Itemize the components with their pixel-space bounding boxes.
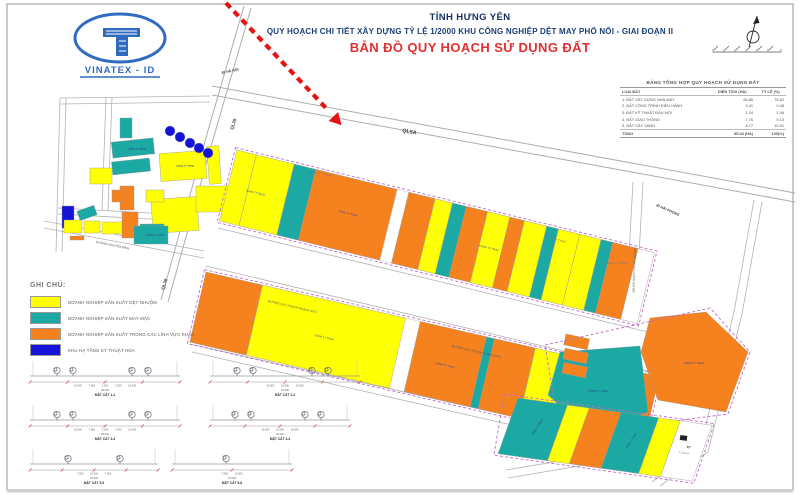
legend-swatch-orange — [30, 328, 61, 340]
plan-sheet: CÔNG TY TNHH CÔNG TY TNHH CÔNG TY TNHH — [0, 0, 800, 500]
logo-t-monogram — [103, 28, 140, 56]
parcel — [146, 190, 164, 202]
parcel — [64, 220, 82, 233]
cell-label: 1. ĐẤT XÂY DỰNG NHÀ MÁY — [620, 96, 709, 103]
land-use-table-title: BẢNG TỔNG HỢP QUY HOẠCH SỬ DỤNG ĐẤT — [620, 80, 786, 85]
water-tank — [185, 138, 195, 148]
section-total: 40.500 — [281, 388, 289, 392]
legend-label: DOANH NGHIỆP SẢN XUẤT TRONG CÁC LĨNH VỰC… — [68, 332, 195, 337]
phase1-cluster: CÔNG TY TNHH CÔNG TY TNHH CÔNG TY TNHH — [62, 118, 230, 244]
vinatex-logo: VINATEX - ID — [75, 14, 165, 77]
cell-label: 3. ĐẤT KỸ THUẬT ĐẦU MỐI — [620, 109, 709, 116]
section-dims: 7.500 15.000 — [221, 472, 243, 476]
cell-area: 1.24 — [709, 109, 755, 116]
kt-code: KT — [686, 445, 691, 450]
section-label: MẶT CẮT 5-5 — [84, 480, 105, 485]
road-label-ql39: QL39 — [229, 118, 237, 131]
legend-label: DOANH NGHIỆP SẢN XUẤT MAY MẶC — [68, 316, 150, 321]
road-label-to-haiphong: ĐI HẢI PHÒNG — [656, 202, 681, 217]
cell-pct: 10.31 — [755, 122, 786, 129]
kt-symbol — [680, 435, 688, 441]
section-total: 22.500 — [228, 476, 236, 480]
table-row: 5. ĐẤT CÂY XANH 8.77 10.31 — [620, 122, 786, 129]
map-canvas: CÔNG TY TNHH CÔNG TY TNHH CÔNG TY TNHH — [0, 0, 800, 500]
water-tank — [175, 132, 185, 142]
cell-pct: 78.62 — [755, 96, 786, 103]
parcel — [102, 222, 122, 234]
section-dims: 7.500 10.500 7.500 — [77, 472, 112, 476]
water-tank — [194, 143, 204, 153]
table-row: 2. ĐẤT CÔNG TRÌNH ĐIỀU HÀNH 0.41 0.48 — [620, 103, 786, 110]
cell-total-label: TỔNG — [620, 129, 709, 137]
plan-subtitle: QUY HOẠCH CHI TIẾT XÂY DỰNG TỶ LỆ 1/2000… — [170, 27, 770, 36]
legend: GHI CHÚ: DOANH NGHIỆP SẢN XUẤT DỆT NHUỘM… — [30, 282, 260, 360]
parcel-label: CÔNG TY TNHH — [128, 148, 146, 151]
legend-item-ha-tang: KHU HẠ TẦNG KỸ THUẬT HOA — [30, 344, 260, 356]
legend-label: KHU HẠ TẦNG KỸ THUẬT HOA — [68, 348, 135, 353]
cell-pct: 9.13 — [755, 116, 786, 123]
water-tank — [203, 148, 213, 158]
legend-label: DOANH NGHIỆP SẢN XUẤT DỆT NHUỘM — [68, 300, 157, 305]
col-header-ty-le: TỶ LỆ (%) — [755, 88, 786, 96]
parcel — [564, 334, 590, 350]
cell-area: 8.77 — [709, 122, 755, 129]
land-use-table: BẢNG TỔNG HỢP QUY HOẠCH SỬ DỤNG ĐẤT LOẠI… — [620, 80, 786, 138]
note-label: CÔNG TY TNHH — [606, 260, 627, 265]
road-label-to-hanoi: ĐI HÀ NỘI — [221, 67, 239, 75]
parcel-label: CÔNG TY TNHH — [146, 234, 164, 237]
parcel — [77, 205, 97, 221]
parcel — [120, 118, 132, 138]
title-block: TỈNH HƯNG YÊN QUY HOẠCH CHI TIẾT XÂY DỰN… — [170, 12, 770, 55]
legend-item-det-nhuom: DOANH NGHIỆP SẢN XUẤT DỆT NHUỘM — [30, 296, 260, 308]
section-total: 48.000 — [101, 388, 109, 392]
parcel — [70, 236, 84, 240]
cell-total-area: 85.04 (HA) — [709, 129, 755, 137]
section-label: MẶT CẮT 2-2 — [275, 392, 296, 397]
cell-label: 2. ĐẤT CÔNG TRÌNH ĐIỀU HÀNH — [620, 103, 709, 110]
cross-section: 15.000 10.500 15.000 40.500 MẶT CẮT 4-4 — [209, 405, 352, 441]
cell-pct: 1.46 — [755, 109, 786, 116]
section-total: 40.500 — [276, 432, 284, 436]
section-dims: 15.000 7.500 3.000 7.500 15.000 — [74, 384, 137, 388]
section-label: MẶT CẮT 3-3 — [95, 436, 116, 441]
table-total-row: TỔNG 85.04 (HA) 100(%) — [620, 129, 786, 137]
table-row: 4. ĐẤT GIAO THÔNG 7.76 9.13 — [620, 116, 786, 123]
legend-title: GHI CHÚ: — [30, 282, 260, 289]
cross-section: 15.000 7.500 3.000 7.500 15.000 48.000 M… — [29, 405, 182, 441]
arrowhead-icon — [329, 112, 342, 125]
map-title: BẢN ĐỒ QUY HOẠCH SỬ DỤNG ĐẤT — [170, 40, 770, 55]
cell-area: 0.41 — [709, 103, 755, 110]
parcel-label: CÔNG TY TNHH — [176, 165, 194, 168]
logo-text: VINATEX - ID — [85, 65, 155, 76]
road-label-ql5a: QL5A — [402, 128, 418, 137]
table-row: 1. ĐẤT XÂY DỰNG NHÀ MÁY 66.86 78.62 — [620, 96, 786, 103]
parcel — [112, 190, 124, 202]
water-tank — [165, 126, 175, 136]
section-label: MẶT CẮT 1-1 — [95, 392, 116, 397]
section-total: 48.000 — [101, 432, 109, 436]
legend-item-may-mac: DOANH NGHIỆP SẢN XUẤT MAY MẶC — [30, 312, 260, 324]
cell-label: 4. ĐẤT GIAO THÔNG — [620, 116, 709, 123]
sheet-border-shadow — [7, 489, 793, 493]
section-total: 25.500 — [90, 476, 98, 480]
cross-section: 7.500 15.000 22.500 MẶT CẮT 6-6 — [171, 449, 294, 485]
cell-label: 5. ĐẤT CÂY XANH — [620, 122, 709, 129]
table-header-row: LOẠI ĐẤT DIỆN TÍCH (HA) TỶ LỆ (%) — [620, 88, 786, 96]
cross-section: 7.500 10.500 7.500 25.500 MẶT CẮT 5-5 — [29, 449, 160, 485]
section-label: MẶT CẮT 4-4 — [270, 436, 291, 441]
cell-area: 7.76 — [709, 116, 755, 123]
section-label: MẶT CẮT 6-6 — [222, 480, 243, 485]
col-header-dien-tich: DIỆN TÍCH (HA) — [709, 88, 755, 96]
cell-total-pct: 100(%) — [755, 129, 786, 137]
table-row: 3. ĐẤT KỸ THUẬT ĐẦU MỐI 1.24 1.46 — [620, 109, 786, 116]
section-dims: 15.000 10.500 15.000 — [266, 384, 304, 388]
col-header-loai-dat: LOẠI ĐẤT — [620, 88, 709, 96]
legend-swatch-yellow — [30, 296, 61, 308]
cell-pct: 0.48 — [755, 103, 786, 110]
section-dims: 15.000 7.500 3.000 7.500 15.000 — [74, 428, 137, 432]
legend-item-linh-vuc-khac: DOANH NGHIỆP SẢN XUẤT TRONG CÁC LĨNH VỰC… — [30, 328, 260, 340]
legend-swatch-teal — [30, 312, 61, 324]
section-dims: 15.000 10.500 15.000 — [261, 428, 299, 432]
cross-section: 15.000 7.500 3.000 7.500 15.000 48.000 M… — [29, 361, 182, 397]
parcel — [84, 221, 100, 233]
parcel — [90, 168, 112, 184]
province-title: TỈNH HƯNG YÊN — [170, 12, 770, 23]
parcel — [111, 158, 150, 175]
legend-swatch-blue — [30, 344, 61, 356]
cell-area: 66.86 — [709, 96, 755, 103]
